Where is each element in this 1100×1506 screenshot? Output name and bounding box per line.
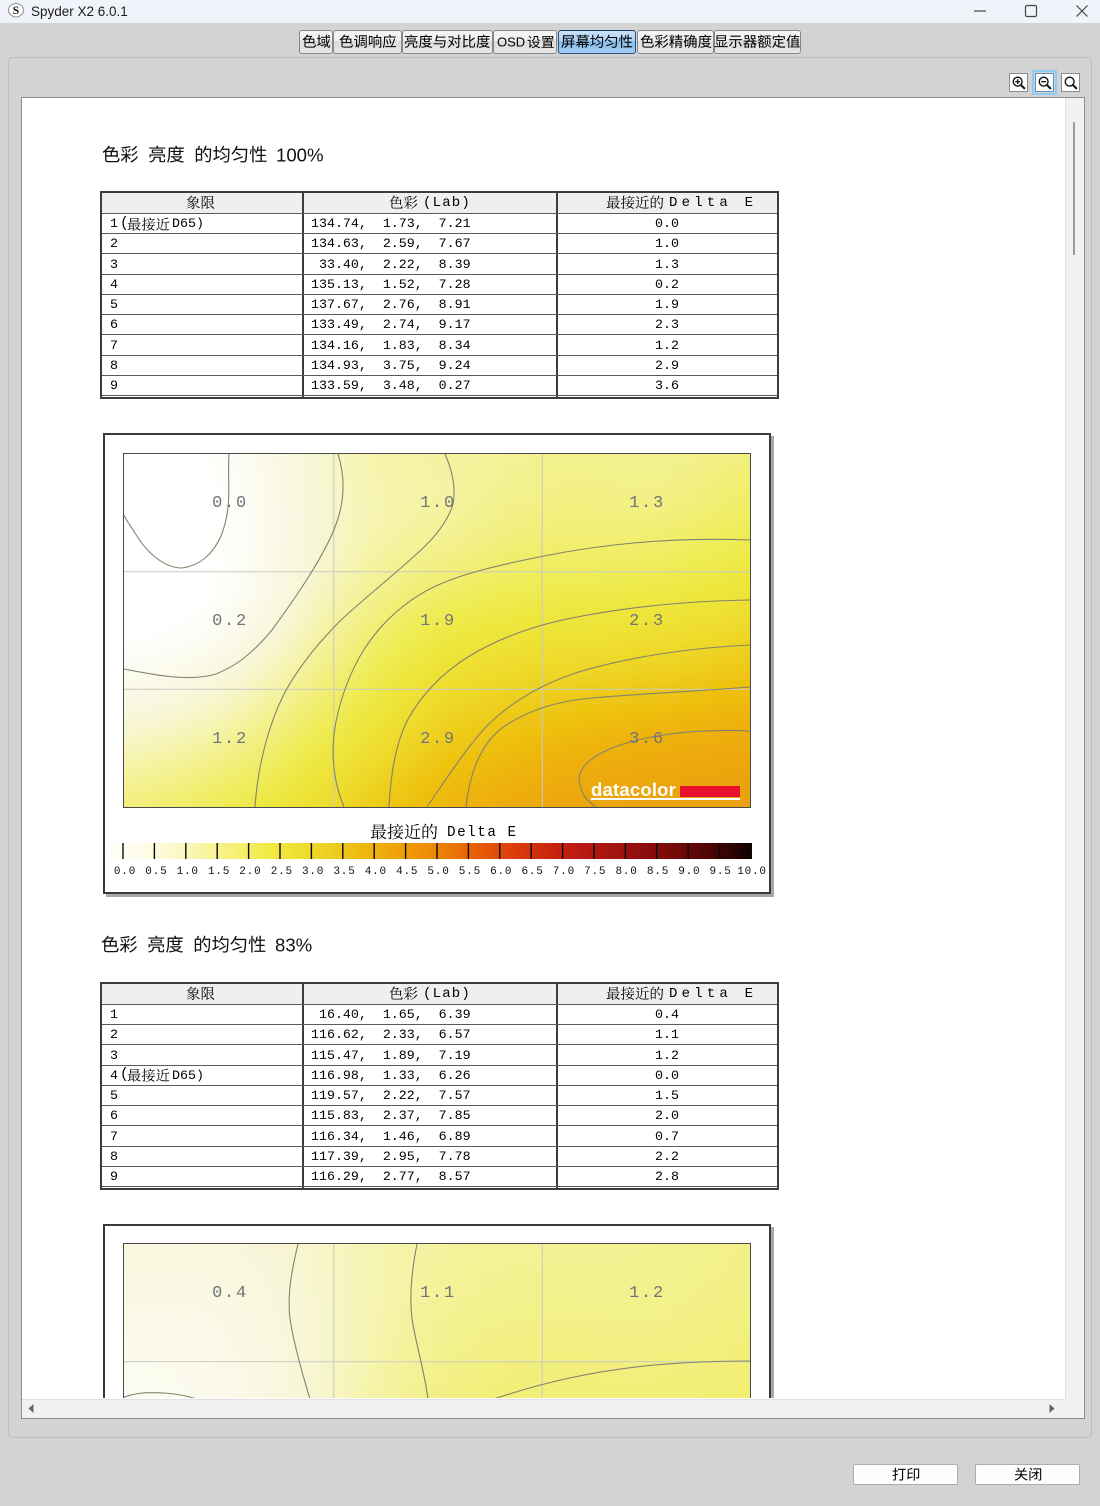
svg-text:100%: 100%: [276, 146, 324, 166]
svg-text:4.5: 4.5: [396, 866, 418, 878]
svg-text:2.0: 2.0: [239, 866, 261, 878]
svg-text:8.0: 8.0: [615, 866, 637, 878]
svg-text:3.6: 3.6: [629, 730, 665, 749]
svg-text:1.9: 1.9: [420, 612, 456, 631]
svg-text:OSD: OSD: [497, 35, 525, 50]
svg-text:6.0: 6.0: [490, 866, 512, 878]
svg-text:3.0: 3.0: [302, 866, 324, 878]
svg-text:4.0: 4.0: [365, 866, 387, 878]
svg-text:datacolor: datacolor: [591, 779, 676, 800]
svg-text:0.4: 0.4: [212, 1284, 248, 1303]
svg-text:7.5: 7.5: [584, 866, 606, 878]
svg-text:5.0: 5.0: [427, 866, 449, 878]
svg-text:0.5: 0.5: [145, 866, 167, 878]
svg-text:0.0: 0.0: [114, 866, 136, 878]
svg-text:1.0: 1.0: [177, 866, 199, 878]
svg-text:1.2: 1.2: [212, 730, 248, 749]
svg-text:7.0: 7.0: [553, 866, 575, 878]
svg-text:2.5: 2.5: [271, 866, 293, 878]
svg-text:1.2: 1.2: [629, 1284, 665, 1303]
svg-text:1.1: 1.1: [420, 1284, 456, 1303]
svg-text:5.5: 5.5: [459, 866, 481, 878]
svg-text:10.0: 10.0: [737, 866, 767, 878]
svg-text:0.0: 0.0: [212, 494, 248, 513]
svg-text:1.3: 1.3: [629, 494, 665, 513]
svg-text:2.3: 2.3: [629, 612, 665, 631]
svg-text:2.9: 2.9: [420, 730, 456, 749]
svg-text:S: S: [13, 5, 19, 17]
svg-text:83%: 83%: [275, 936, 312, 956]
svg-text:1.5: 1.5: [208, 866, 230, 878]
svg-text:6.5: 6.5: [521, 866, 543, 878]
svg-text:9.0: 9.0: [678, 866, 700, 878]
svg-text:0.2: 0.2: [212, 612, 248, 631]
svg-text:3.5: 3.5: [333, 866, 355, 878]
svg-text:1.0: 1.0: [420, 494, 456, 513]
svg-text:9.5: 9.5: [709, 866, 731, 878]
svg-text:8.5: 8.5: [647, 866, 669, 878]
